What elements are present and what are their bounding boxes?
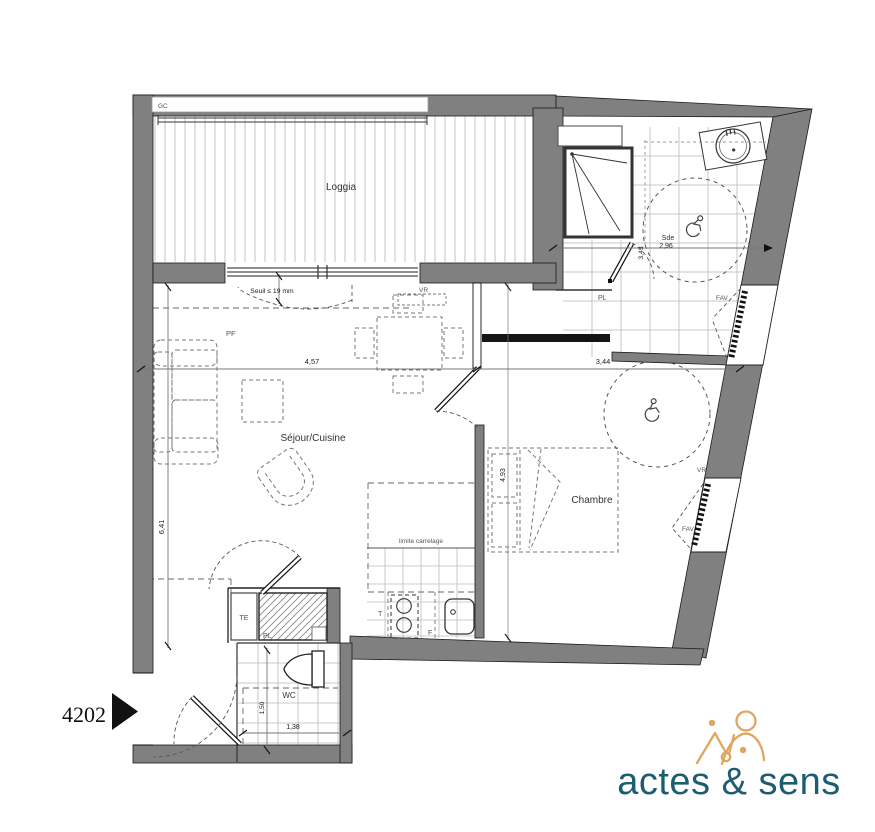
dim-sde-width: 2,96 [659,243,673,250]
dim-hall-width: 3,44 [596,357,611,366]
logo: actes & sens [617,712,841,804]
vr-label-chambre: VR [697,467,706,474]
pl-label-entry: PL [263,633,272,640]
logo-wordmark: actes & sens [617,761,841,803]
wc-tile-floor [238,643,340,762]
sofa-icon [154,340,218,464]
loggia-label: Loggia [326,182,356,193]
limite-carrelage-label: limite carrelage [399,538,443,545]
dim-sde-height: 3,43 [638,246,645,259]
unit-number: 4202 [62,702,106,727]
te-label: TE [240,615,249,622]
vr-label-bay: VR [419,287,428,294]
vr-box [398,294,446,305]
wheelchair-icon [685,214,703,238]
coffee-table-icon [242,380,283,422]
wheelchair-icon [642,398,660,422]
dining-table-icon [355,295,463,393]
floor-plan-svg: 4,57 3,44 6,41 4,93 3,43 2,96 1,38 1,50 … [0,0,875,832]
oven-label: F [428,630,432,637]
pl-label-hall: PL [598,295,607,302]
window-chambre [691,478,741,552]
kitchen-tile-floor [367,548,477,638]
door-sde [608,243,654,283]
pf-label: PF [226,329,236,338]
logo-mark-icon [697,712,764,765]
washbasin-icon [699,122,767,170]
unit-marker: 4202 [62,693,138,730]
entrance-arrow-icon [112,693,138,730]
fav-label-chambre: FAV [682,526,694,533]
shower-icon [565,148,632,237]
door-living-hall [436,368,478,428]
dimension-ticks [137,244,773,754]
chambre-label: Chambre [571,495,613,506]
gc-duct [152,97,428,112]
gc-label: GC [158,103,168,110]
dim-wc-width: 1,38 [286,724,300,731]
door-entry-living [209,541,300,593]
armchair-icon [255,446,322,514]
turning-circle-sde [643,178,747,282]
sejour-label: Séjour/Cuisine [280,433,345,444]
turning-circle-chambre [604,361,710,467]
shower-niche [558,126,622,146]
toilet-icon [284,651,324,687]
sink-icon [445,599,474,634]
floor-plan-page: 4,57 3,44 6,41 4,93 3,43 2,96 1,38 1,50 … [0,0,875,832]
seuil-label: Seuil ≤ 19 mm [250,288,294,295]
wall-details [133,283,612,762]
sde-label: Sde [662,235,675,242]
dim-wc-height: 1,50 [259,701,266,714]
fav-label-sde: FAV [716,295,728,302]
dim-chambre-height: 4,93 [500,468,507,482]
wc-label: WC [282,691,296,700]
hob-icon [391,595,418,638]
dim-sejour-width: 4,57 [305,357,320,366]
window-sde [726,285,778,365]
dim-sejour-height: 6,41 [157,520,166,535]
hob-label: T [378,611,383,618]
sliding-bay-window [227,265,418,279]
